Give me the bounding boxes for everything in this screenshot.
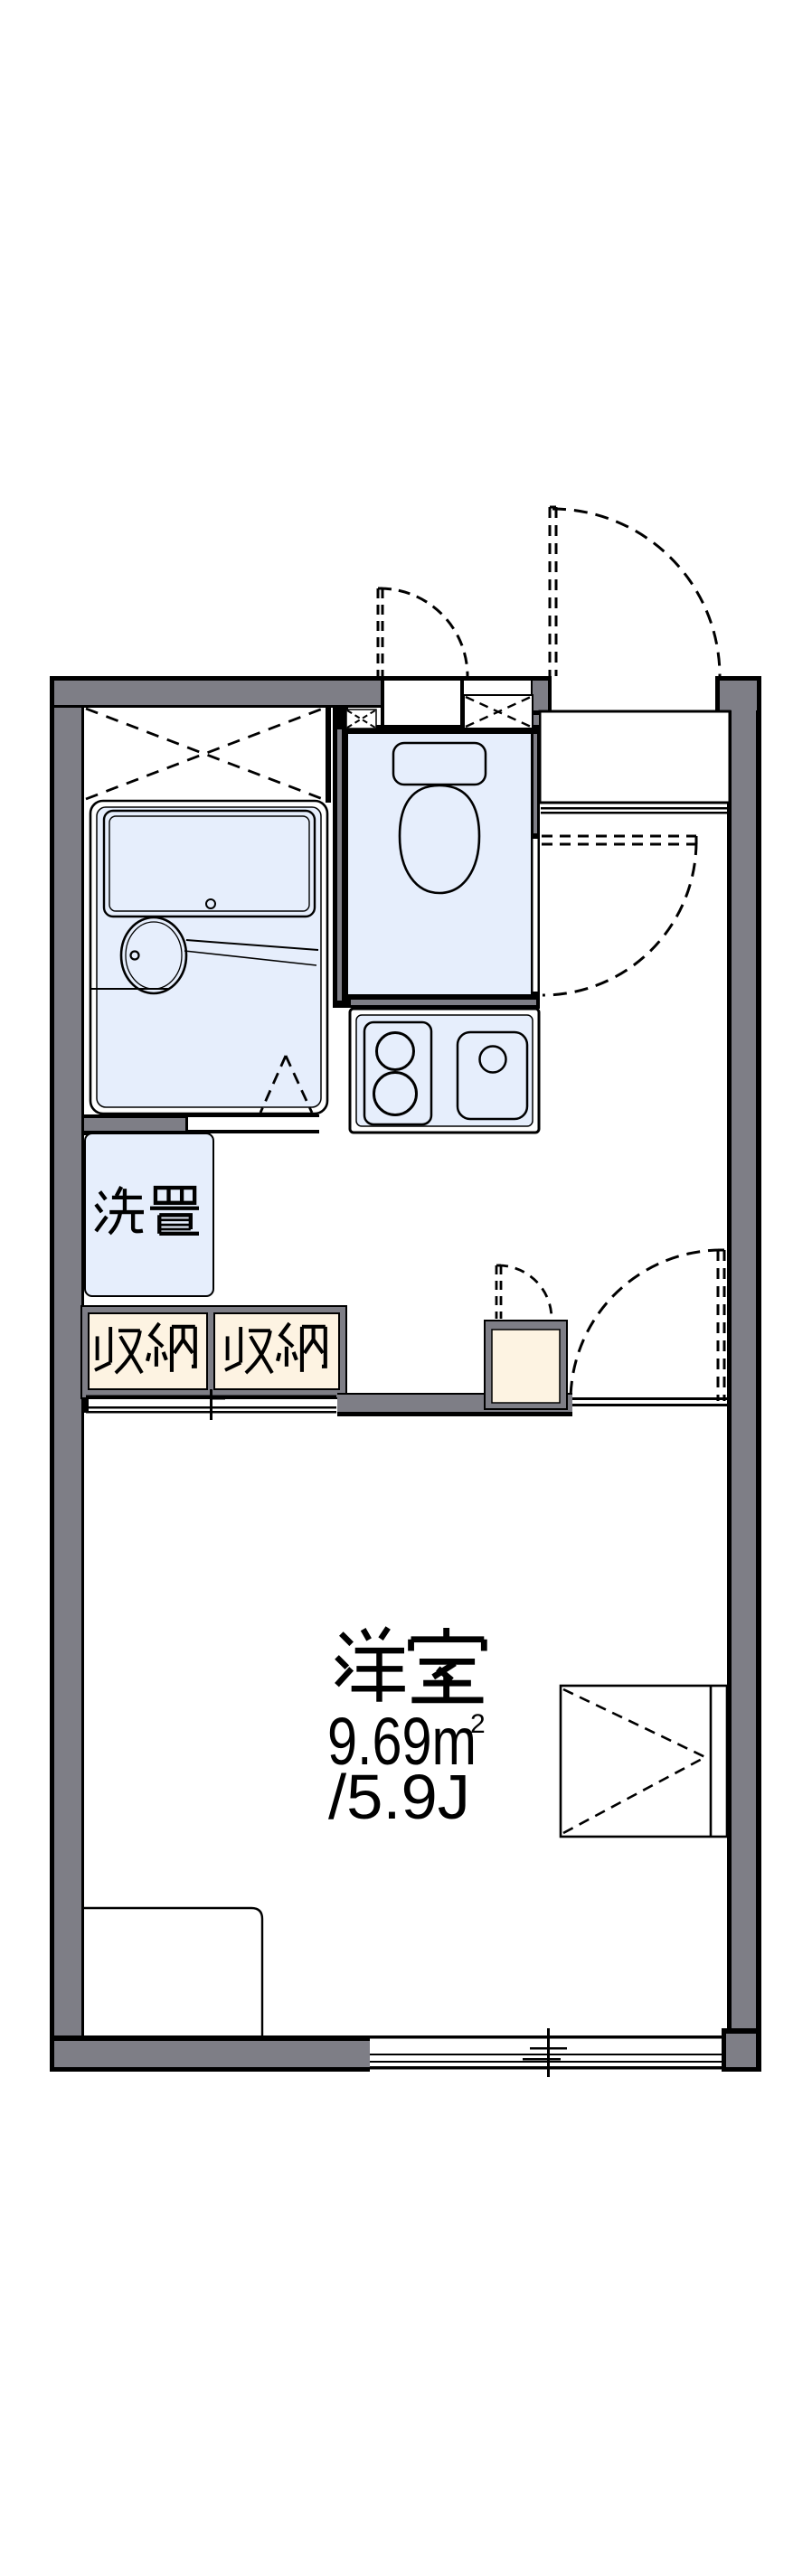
svg-text:/5.9J: /5.9J <box>328 1762 470 1832</box>
svg-text:2: 2 <box>470 1709 486 1739</box>
